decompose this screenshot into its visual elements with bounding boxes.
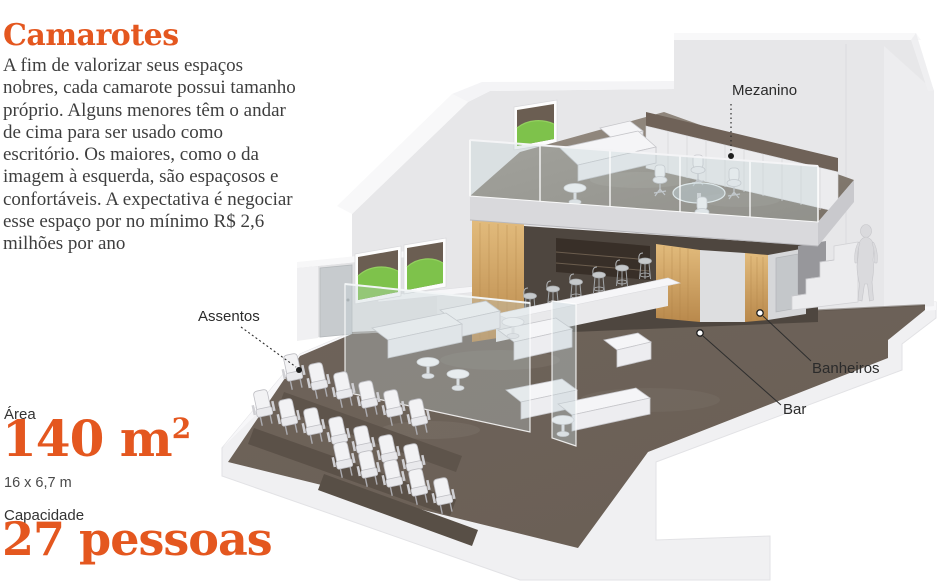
- callout-mezzanine: Mezanino: [732, 82, 797, 99]
- stairs: [792, 241, 858, 310]
- callout-bar: Bar: [783, 401, 806, 418]
- infographic-camarotes: Camarotes A fim de valorizar seus espaço…: [0, 0, 941, 581]
- area-value: 140 m2: [2, 414, 190, 464]
- page-title: Camarotes: [3, 18, 179, 53]
- area-dimensions: 16 x 6,7 m: [4, 475, 72, 491]
- area-superscript: 2: [172, 412, 190, 445]
- window-left-2: [404, 238, 446, 294]
- description-paragraph: A fim de valorizar seus espaços nobres, …: [3, 55, 299, 256]
- callout-bathrooms: Banheiros: [812, 360, 880, 377]
- callout-seats: Assentos: [198, 308, 260, 325]
- capacity-value: 27 pessoas: [2, 516, 272, 562]
- window-upper: [514, 100, 557, 150]
